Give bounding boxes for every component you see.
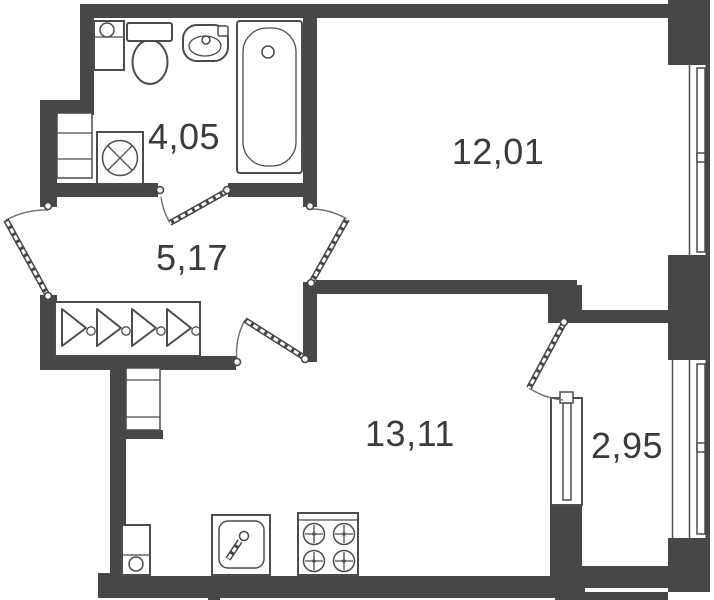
wall-hall-room-strip	[303, 282, 317, 362]
wall-bottom-edge-strip	[555, 592, 668, 600]
wall-balcony-block-north	[548, 285, 582, 323]
vent-shaft-icon	[57, 113, 92, 178]
wall-balcony-block-south	[550, 505, 582, 577]
stove-icon	[298, 513, 358, 575]
wall-left-upper	[80, 4, 94, 113]
burner	[334, 524, 355, 545]
burner	[304, 524, 325, 545]
wall-left-a	[40, 100, 57, 207]
floor-plan-drawing	[0, 0, 714, 600]
washbasin-icon	[183, 25, 228, 61]
wall-bath-east	[303, 18, 317, 207]
kitchen-vent-shaft-icon	[126, 368, 163, 439]
wall-balcony-bottom	[582, 566, 710, 588]
walls	[40, 0, 710, 600]
kitchen-balcony-window-icon	[551, 392, 582, 505]
wall-bottom-tick	[208, 595, 220, 600]
floor-plan: 4,05 12,01 5,17 13,11 2,95	[0, 0, 714, 600]
kitchen-door-swing-icon	[234, 320, 309, 366]
living-room-area-label: 12,01	[452, 131, 545, 173]
burner	[304, 551, 325, 572]
bathroom-area-label: 4,05	[148, 116, 220, 158]
wall-top-right-corner	[668, 0, 710, 65]
balcony-door-swing-icon	[529, 319, 568, 401]
wall-room-kitchen	[316, 280, 577, 294]
entrance-door-swing-icon	[6, 203, 52, 300]
balcony-area-label: 2,95	[591, 425, 663, 467]
wall-top	[80, 4, 668, 18]
kitchen-area-label: 13,11	[365, 413, 455, 455]
hallway-area-label: 5,17	[156, 237, 228, 279]
bathroom-door-swing-icon	[157, 187, 231, 224]
balcony-window-icon	[668, 360, 710, 538]
wall-right-mid	[668, 255, 710, 360]
wardrobe-hangers-icon	[55, 302, 200, 356]
kitchen-sink-icon	[212, 515, 270, 575]
wall-bottom-main	[98, 576, 585, 598]
burner	[334, 551, 355, 572]
living-room-window-icon	[668, 65, 710, 255]
bathtub-icon	[237, 21, 302, 173]
living-room-door-swing-icon	[307, 203, 348, 287]
wall-bath-south-left	[57, 183, 158, 197]
utility-sink-icon	[94, 21, 124, 70]
wall-balcony-north	[582, 310, 670, 323]
toilet-icon	[127, 23, 172, 84]
fridge-icon	[122, 525, 150, 575]
washing-machine-icon	[97, 132, 143, 184]
